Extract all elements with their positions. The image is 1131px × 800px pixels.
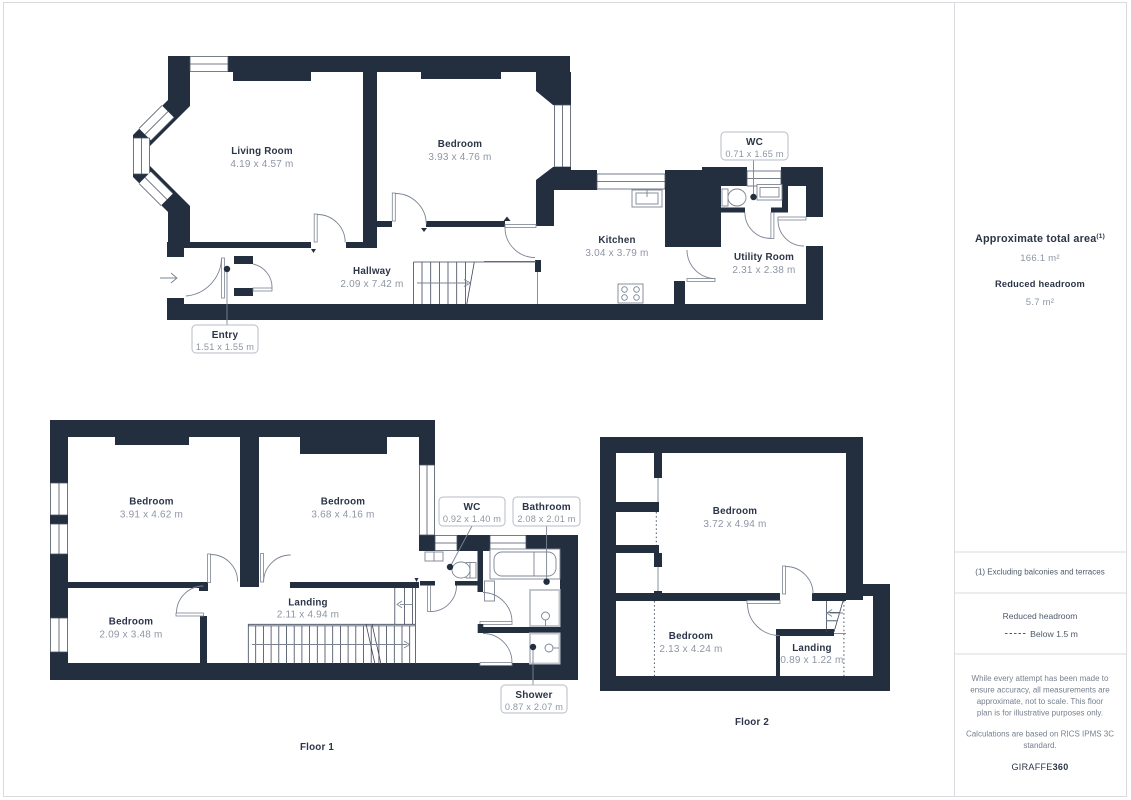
- svg-text:3.93 x 4.76 m: 3.93 x 4.76 m: [428, 152, 491, 163]
- svg-text:plan is for illustrative purpo: plan is for illustrative purposes only.: [977, 709, 1103, 718]
- svg-text:WC: WC: [746, 137, 763, 148]
- svg-text:2.11 x 4.94 m: 2.11 x 4.94 m: [277, 610, 339, 621]
- svg-text:2.08 x 2.01 m: 2.08 x 2.01 m: [517, 514, 575, 524]
- svg-text:Bedroom: Bedroom: [438, 139, 482, 150]
- svg-text:standard.: standard.: [1023, 741, 1056, 750]
- svg-text:Landing: Landing: [792, 643, 832, 654]
- svg-text:4.19 x 4.57 m: 4.19 x 4.57 m: [230, 159, 293, 170]
- svg-text:0.89 x 1.22 m: 0.89 x 1.22 m: [780, 655, 843, 666]
- svg-text:166.1 m²: 166.1 m²: [1020, 253, 1060, 264]
- svg-text:approximate, not to scale. Thi: approximate, not to scale. This floor: [977, 697, 1104, 706]
- svg-text:3.04 x 3.79 m: 3.04 x 3.79 m: [585, 248, 648, 259]
- svg-text:Reduced headroom: Reduced headroom: [995, 279, 1085, 289]
- svg-text:Bedroom: Bedroom: [109, 617, 153, 628]
- svg-text:Kitchen: Kitchen: [598, 235, 635, 246]
- svg-text:ensure accuracy, all measureme: ensure accuracy, all measurements are: [970, 686, 1110, 695]
- svg-text:Shower: Shower: [515, 690, 552, 701]
- svg-text:3.68 x 4.16 m: 3.68 x 4.16 m: [311, 510, 374, 521]
- svg-text:0.87 x 2.07 m: 0.87 x 2.07 m: [505, 702, 563, 712]
- svg-text:2.31 x 2.38 m: 2.31 x 2.38 m: [732, 265, 795, 276]
- svg-text:0.71 x 1.65 m: 0.71 x 1.65 m: [725, 149, 783, 159]
- svg-text:(1) Excluding balconies and te: (1) Excluding balconies and terraces: [975, 568, 1104, 577]
- svg-text:3.72 x 4.94 m: 3.72 x 4.94 m: [703, 519, 766, 530]
- svg-text:Bedroom: Bedroom: [713, 506, 757, 517]
- svg-text:Hallway: Hallway: [353, 266, 391, 277]
- svg-text:GIRAFFE360: GIRAFFE360: [1011, 762, 1068, 772]
- svg-text:Landing: Landing: [288, 598, 328, 609]
- svg-text:5.7 m²: 5.7 m²: [1026, 297, 1055, 308]
- svg-text:2.09 x 7.42 m: 2.09 x 7.42 m: [340, 279, 403, 290]
- svg-text:Bathroom: Bathroom: [522, 502, 571, 513]
- svg-text:Reduced headroom: Reduced headroom: [1003, 611, 1078, 621]
- svg-text:1.51 x 1.55 m: 1.51 x 1.55 m: [196, 342, 254, 352]
- svg-text:Floor 2: Floor 2: [735, 717, 769, 728]
- svg-text:WC: WC: [463, 502, 480, 513]
- svg-text:Approximate total area(1): Approximate total area(1): [975, 233, 1105, 245]
- svg-text:0.92 x 1.40 m: 0.92 x 1.40 m: [443, 514, 501, 524]
- svg-text:3.91 x 4.62 m: 3.91 x 4.62 m: [120, 510, 183, 521]
- svg-text:Below 1.5 m: Below 1.5 m: [1030, 629, 1078, 639]
- svg-text:Calculations are based on RICS: Calculations are based on RICS IPMS 3C: [966, 730, 1114, 739]
- svg-text:Bedroom: Bedroom: [129, 497, 173, 508]
- svg-text:2.13 x 4.24 m: 2.13 x 4.24 m: [659, 644, 722, 655]
- svg-text:While every attempt has been m: While every attempt has been made to: [972, 674, 1110, 683]
- svg-text:Entry: Entry: [212, 330, 239, 341]
- svg-text:2.09 x 3.48 m: 2.09 x 3.48 m: [99, 630, 162, 641]
- svg-text:Bedroom: Bedroom: [669, 631, 713, 642]
- svg-text:Floor 1: Floor 1: [300, 742, 334, 753]
- svg-text:Living Room: Living Room: [231, 146, 293, 157]
- svg-text:Bedroom: Bedroom: [321, 497, 365, 508]
- svg-text:Utility Room: Utility Room: [734, 252, 794, 263]
